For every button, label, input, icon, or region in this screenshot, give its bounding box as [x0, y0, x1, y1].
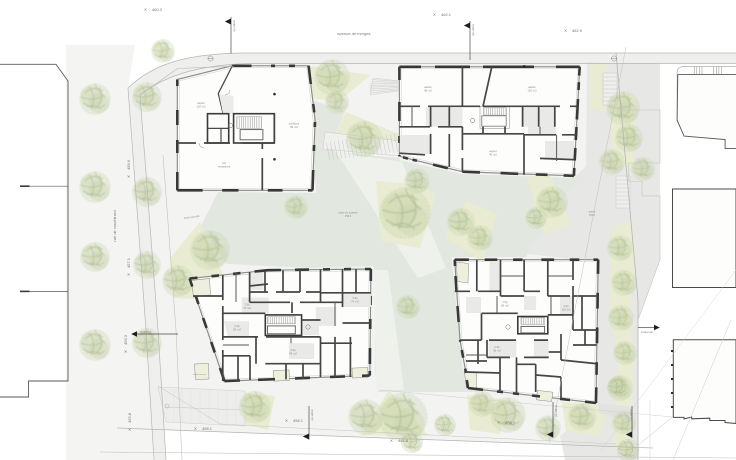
svg-text:120 m2: 120 m2	[196, 105, 206, 109]
svg-text:coupe dd: coupe dd	[555, 405, 559, 417]
svg-text:457.1: 457.1	[126, 257, 131, 268]
svg-text:coupe 99: coupe 99	[630, 409, 634, 420]
svg-text:coupe bb: coupe bb	[233, 20, 237, 32]
svg-text:98 m2: 98 m2	[424, 89, 432, 93]
svg-text:55 m2: 55 m2	[233, 328, 241, 332]
svg-text:456.3: 456.3	[123, 334, 128, 345]
svg-text:place du quartier: place du quartier	[338, 211, 357, 215]
svg-text:457.8: 457.8	[398, 438, 409, 443]
svg-text:×: ×	[433, 13, 436, 19]
svg-text:×: ×	[497, 420, 500, 426]
svg-text:×: ×	[128, 428, 134, 431]
svg-text:459.5: 459.5	[589, 214, 596, 217]
svg-text:avenue de morges: avenue de morges	[337, 31, 370, 36]
svg-text:102 m2: 102 m2	[561, 308, 571, 312]
svg-text:462.1: 462.1	[441, 12, 452, 17]
svg-text:dérochement: dérochement	[193, 373, 206, 376]
svg-text:×: ×	[285, 419, 288, 425]
svg-text:×: ×	[144, 8, 147, 14]
svg-text:458.6: 458.6	[126, 159, 131, 170]
svg-text:456.1: 456.1	[293, 418, 304, 423]
svg-text:46 m2: 46 m2	[489, 153, 497, 157]
svg-text:×: ×	[127, 175, 133, 178]
svg-text:coupe bb: coupe bb	[311, 409, 315, 421]
svg-text:458.7: 458.7	[505, 420, 516, 426]
svg-text:458.0: 458.0	[345, 214, 352, 218]
svg-text:×: ×	[564, 29, 567, 35]
svg-text:85 m2: 85 m2	[501, 304, 509, 308]
svg-text:×: ×	[390, 439, 393, 445]
svg-text:74 m2: 74 m2	[351, 300, 359, 304]
svg-text:98 m2: 98 m2	[289, 352, 297, 356]
svg-text:462.9: 462.9	[572, 28, 583, 33]
svg-text:coupe dd: coupe dd	[472, 24, 476, 36]
svg-text:×: ×	[127, 273, 133, 276]
svg-text:458.1: 458.1	[202, 426, 213, 431]
svg-text:×: ×	[124, 350, 130, 353]
svg-text:455.8: 455.8	[127, 412, 132, 423]
svg-text:rue de couchirard: rue de couchirard	[112, 210, 117, 241]
svg-text:460.3: 460.3	[152, 7, 163, 12]
svg-text:102 m2: 102 m2	[527, 89, 537, 93]
svg-text:coupe cc: coupe cc	[140, 330, 152, 334]
svg-text:72 m2: 72 m2	[243, 306, 251, 310]
svg-text:×: ×	[194, 427, 197, 433]
svg-text:58 m2: 58 m2	[493, 349, 501, 353]
svg-text:restaurant: restaurant	[218, 165, 231, 169]
svg-text:coupe aa: coupe aa	[641, 330, 653, 334]
svg-text:89 m2: 89 m2	[290, 125, 298, 129]
